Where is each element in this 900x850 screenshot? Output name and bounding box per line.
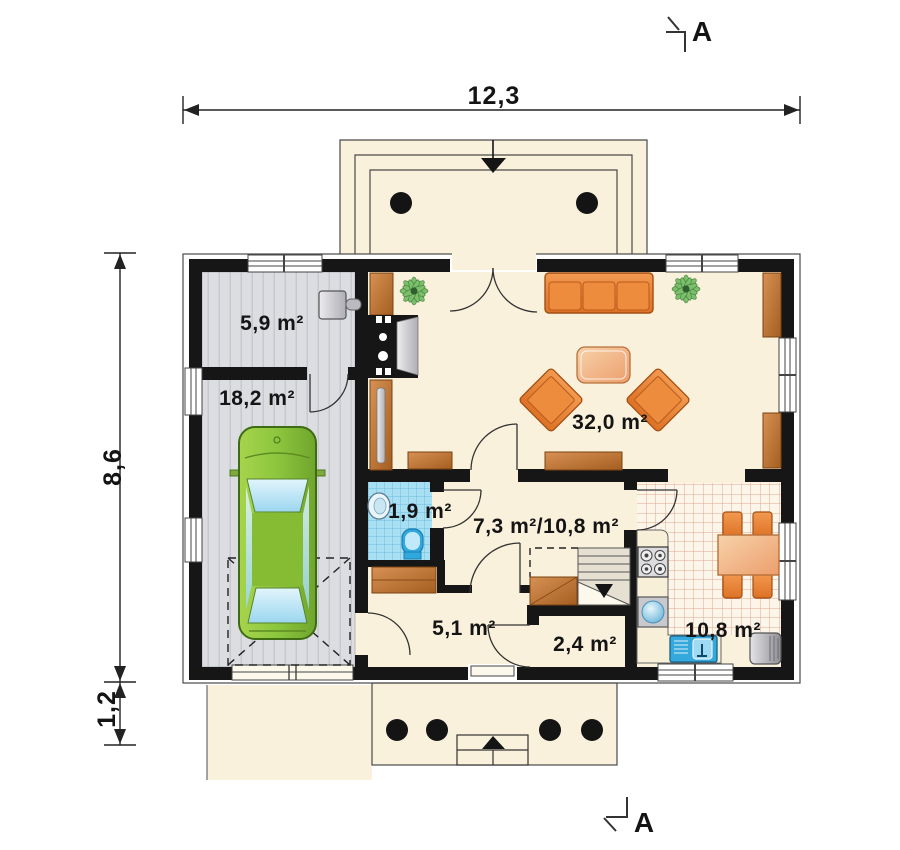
section-line-top [666, 17, 685, 52]
garage-door-opening [232, 665, 353, 680]
car-windshield [247, 479, 308, 512]
fireplace-shelf-bottom [370, 380, 392, 470]
porch-column [426, 719, 448, 741]
car-roof [252, 513, 303, 586]
room-label-garage: 18,2 m² [219, 387, 295, 410]
coffee-table [577, 347, 630, 383]
porch-column [390, 192, 412, 214]
porch-column [576, 192, 598, 214]
dim-width-value: 12,3 [468, 82, 521, 110]
dim-arrow-up [114, 254, 126, 269]
section-label-top: A [692, 16, 712, 47]
boiler-pipe [346, 299, 361, 310]
room-label-kitchen: 10,8 m² [685, 619, 761, 642]
dining-chair [753, 573, 772, 598]
sofa [545, 273, 653, 313]
dim-porch-value: 1,2 [93, 690, 121, 728]
window-left-garage-1 [185, 368, 202, 415]
room-label-pantry: 2,4 m² [553, 633, 617, 656]
hall-cabinet [372, 567, 436, 593]
dim-arrow-right [784, 104, 799, 116]
room-label-hall: 7,3 m²/10,8 m² [473, 515, 619, 538]
dim-arrow-down-small [114, 729, 126, 744]
car-rear-window [248, 588, 307, 623]
entry-door-bottom [468, 664, 517, 680]
plant [672, 275, 700, 303]
entry-steps [457, 735, 528, 765]
window-bottom-kitchen [658, 664, 733, 681]
room-label-wc: 1,9 m² [388, 500, 452, 523]
fireplace-opening [397, 317, 418, 375]
room-label-living: 32,0 m² [572, 411, 648, 434]
floor-plan-drawing: 5,9 m² 18,2 m² 32,0 m² 1,9 m² 7,3 m²/10,… [0, 0, 900, 850]
room-label-utility: 5,9 m² [240, 312, 304, 335]
dining-chair [723, 573, 742, 598]
car [230, 427, 325, 639]
wall-cabinet [763, 413, 781, 468]
plant [400, 277, 428, 305]
section-marker-top: A [666, 16, 712, 52]
fireplace-shelf-top [370, 273, 393, 315]
dimension-top: 12,3 [183, 82, 800, 124]
room-label-corridor: 5,1 m² [432, 617, 496, 640]
wc-toilet [402, 529, 423, 559]
sideboard [545, 452, 622, 470]
porch-column [539, 719, 561, 741]
section-line-bottom [604, 797, 627, 831]
dim-arrow-left [184, 104, 199, 116]
dining-chair [753, 512, 772, 537]
window-left-garage-2 [185, 518, 202, 562]
wall-cabinet [763, 273, 781, 337]
boiler [319, 291, 346, 319]
stove [638, 547, 668, 577]
window-top-living [666, 255, 738, 272]
driveway [207, 685, 372, 780]
wc-sink-bowl [374, 498, 386, 514]
washing-machine [638, 597, 668, 627]
porch-column [581, 719, 603, 741]
dim-arrow-down [114, 666, 126, 681]
window-right-dining [779, 523, 796, 600]
section-marker-bottom: A [604, 797, 654, 838]
entry-opening-top [452, 250, 536, 270]
bench [408, 452, 452, 469]
dining-table [718, 535, 779, 575]
driveway-surface [207, 685, 372, 780]
section-label-bottom: A [634, 807, 654, 838]
dining-chair [723, 512, 742, 537]
wall-living-bottom [368, 469, 470, 482]
window-top-utility [248, 255, 322, 272]
wall-garage-divider [355, 259, 368, 613]
floor-plan-page: 5,9 m² 18,2 m² 32,0 m² 1,9 m² 7,3 m²/10,… [0, 0, 900, 850]
dim-height-value: 8,6 [99, 448, 127, 486]
porch-bottom [372, 683, 617, 765]
dimension-left: 8,6 1,2 [93, 253, 136, 745]
stairs-cabinet [530, 577, 577, 605]
wall-utility-bottom [202, 367, 307, 380]
wall-stairs-bottom [527, 605, 637, 616]
window-right-living [779, 338, 796, 412]
porch-column [386, 719, 408, 741]
porch-top [340, 140, 647, 254]
